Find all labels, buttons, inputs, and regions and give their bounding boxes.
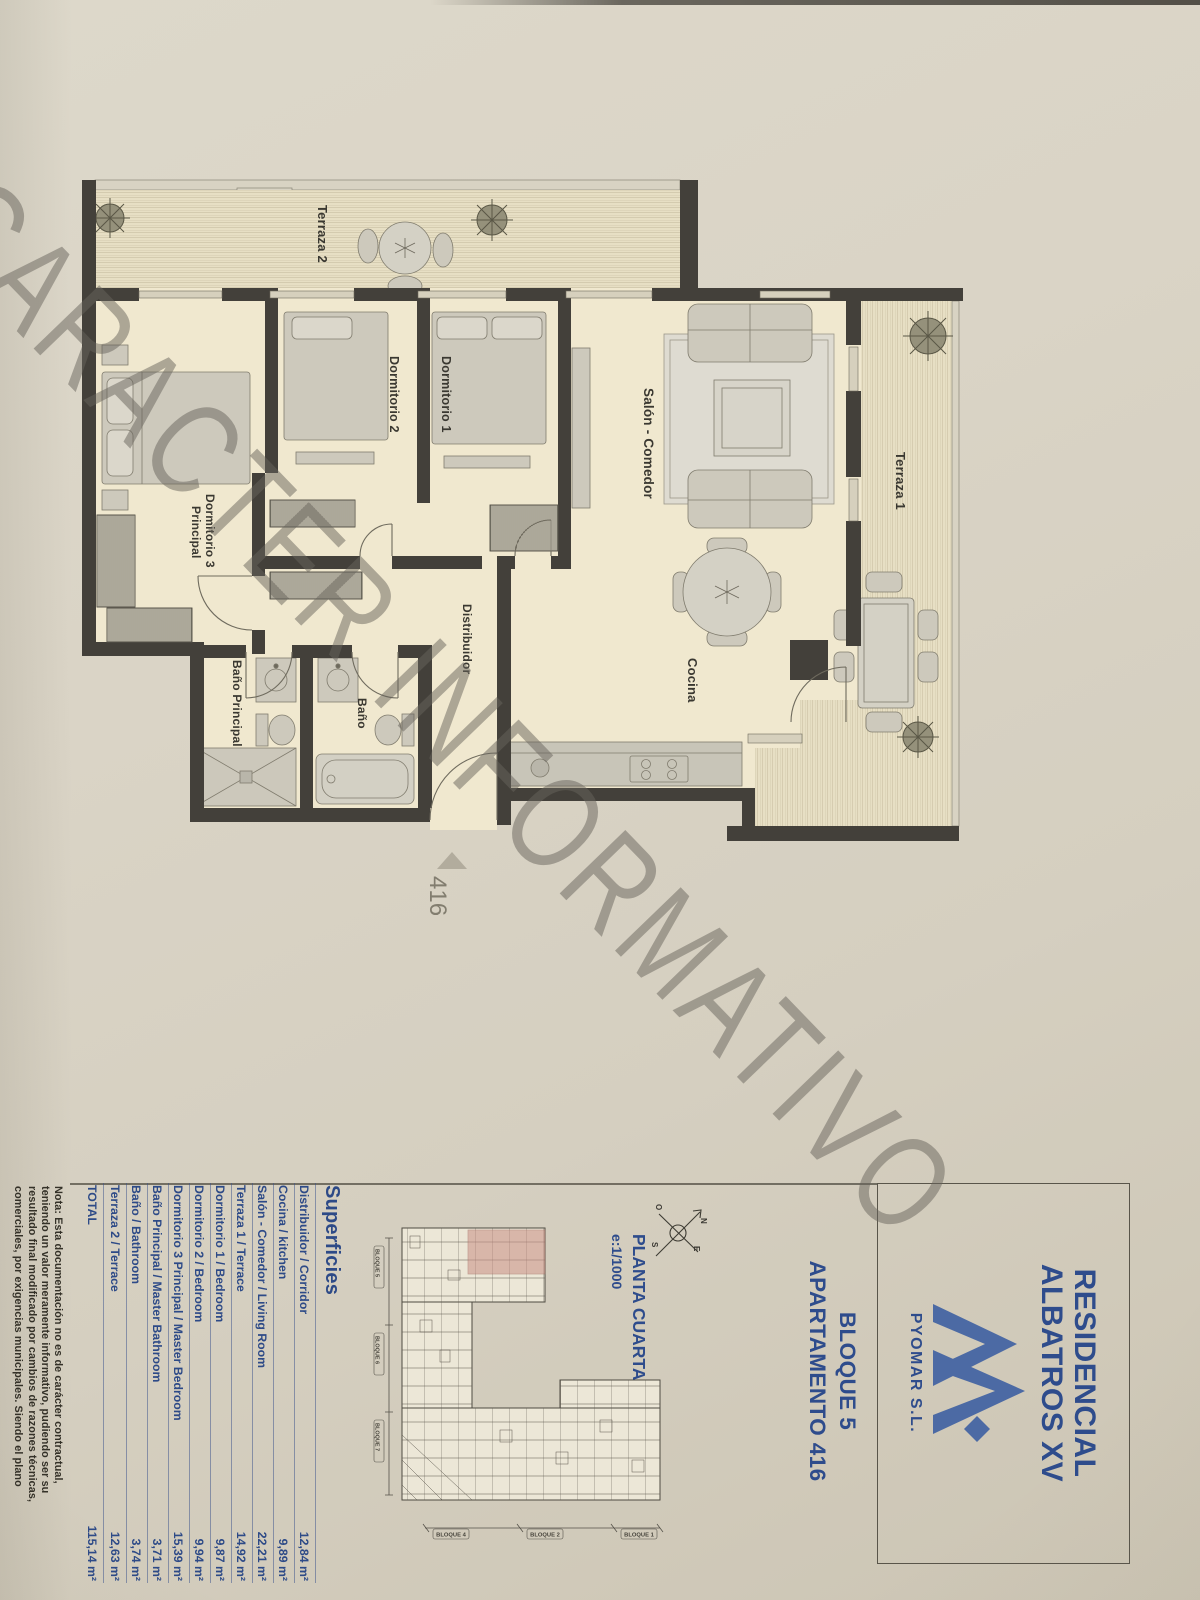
nightstand — [102, 345, 128, 365]
area-row-label: Terraza 1 / Terrace — [235, 1185, 249, 1292]
areas-total-label: TOTAL — [86, 1185, 100, 1225]
label-dormitorio1: Dormitorio 1 — [439, 356, 453, 433]
entrance-number: 416 — [424, 876, 451, 916]
site-side-label: BLOQUE 7 — [374, 1423, 380, 1451]
entrance-arrow-icon — [437, 852, 467, 869]
pillow — [107, 430, 133, 476]
unit-block-line1: BLOQUE 5 — [832, 1242, 862, 1500]
floor-name: PLANTA CUARTA — [628, 1234, 649, 1404]
company-name: PYOMAR S.L. — [906, 1313, 924, 1434]
area-row-value: 12,63 m² — [109, 1532, 123, 1581]
areas-table-row: Dormitorio 2 / Bedroom9,94 m² — [190, 1183, 211, 1583]
areas-table-row: Cocina / kitchen9,89 m² — [274, 1183, 295, 1583]
chair — [433, 233, 453, 267]
label-cocina: Cocina — [685, 658, 700, 703]
unit-block-line2: APARTAMENTO 416 — [802, 1242, 832, 1500]
label-salon: Salón - Comedor — [641, 388, 656, 500]
terrace-dining-table — [858, 598, 914, 708]
area-row-label: Distribuidor / Corridor — [298, 1185, 312, 1314]
legal-note-line: resultado final modificado por cambios d… — [24, 1186, 37, 1596]
label-dormitorio3-2: Principal — [189, 506, 203, 558]
highlighted-apartment — [468, 1230, 545, 1274]
floor-info-block: PLANTA CUARTA e:1/1000 — [609, 1234, 649, 1404]
label-bano-principal: Baño Principal — [230, 660, 244, 747]
bench — [444, 456, 530, 468]
chair — [918, 610, 938, 640]
legal-note: Nota: Esta documentación no es de caráct… — [11, 1186, 64, 1596]
label-dormitorio2: Dormitorio 2 — [387, 356, 401, 433]
chair — [866, 712, 902, 732]
chair — [866, 572, 902, 592]
pyomar-logo-icon — [929, 1298, 1029, 1448]
areas-table-row: Baño / Bathroom3,74 m² — [127, 1183, 148, 1583]
legal-note-line: Nota: Esta documentación no es de caráct… — [51, 1186, 64, 1596]
pillow — [437, 317, 487, 339]
compass-rose-icon: N E S O — [650, 1204, 708, 1256]
terraza2-parapet — [95, 180, 680, 190]
area-row-label: Dormitorio 2 / Bedroom — [193, 1185, 207, 1322]
legal-note-line: comerciales, por exigencias municipales.… — [11, 1186, 24, 1596]
area-row-value: 12,84 m² — [298, 1532, 312, 1581]
chair — [918, 652, 938, 682]
wc-tank — [256, 714, 268, 746]
compass-n: N — [699, 1218, 708, 1224]
areas-total-row: TOTAL 115,14 m² — [83, 1183, 104, 1583]
areas-table-row: Dormitorio 1 / Bedroom9,87 m² — [211, 1183, 232, 1583]
area-row-value: 9,94 m² — [193, 1539, 207, 1581]
label-terraza1: Terraza 1 — [893, 452, 908, 510]
area-row-label: Baño / Bathroom — [130, 1185, 144, 1284]
label-dormitorio3-1: Dormitorio 3 — [203, 494, 217, 568]
pillow — [492, 317, 542, 339]
compass-s: S — [650, 1242, 659, 1248]
site-bottom-label: BLOQUE 4 — [436, 1533, 466, 1539]
photographed-floorplan-page: { "watermark": "CARACTER INFORMATIVO", "… — [0, 0, 1200, 1600]
plant-icon — [471, 199, 513, 241]
unit-title-block: BLOQUE 5 APARTAMENTO 416 — [802, 1242, 862, 1500]
area-row-value: 15,39 m² — [172, 1532, 186, 1581]
floor-plan: 416 Terraza 2 Dormitorio 2 Dormitorio 1 … — [82, 180, 963, 916]
wc-tank — [402, 714, 414, 746]
coffee-table — [714, 380, 790, 456]
bench — [296, 452, 374, 464]
site-side-label: BLOQUE 6 — [374, 1336, 380, 1364]
toilet — [375, 715, 401, 745]
site-bottom-label: BLOQUE 1 — [624, 1533, 654, 1539]
area-row-value: 14,92 m² — [235, 1532, 249, 1581]
areas-table-header: Superficies — [320, 1185, 343, 1583]
site-bottom-label: BLOQUE 2 — [530, 1533, 560, 1539]
floor-scale: e:1/1000 — [609, 1234, 625, 1404]
area-row-value: 3,71 m² — [151, 1539, 165, 1581]
area-row-value: 9,89 m² — [277, 1539, 291, 1581]
area-row-label: Terraza 2 / Terrace — [109, 1185, 123, 1292]
label-distribuidor: Distribuidor — [460, 604, 474, 675]
sideboard — [572, 348, 590, 508]
area-row-label: Dormitorio 3 Principal / Master Bedroom — [172, 1185, 186, 1421]
pillow — [107, 378, 133, 424]
plant-icon — [903, 311, 953, 361]
area-row-label: Dormitorio 1 / Bedroom — [214, 1185, 228, 1322]
areas-table-row: Terraza 2 / Terrace12,63 m² — [106, 1183, 127, 1583]
areas-table-row: Baño Principal / Master Bathroom3,71 m² — [148, 1183, 169, 1583]
bathtub — [316, 754, 414, 804]
areas-total-value: 115,14 m² — [86, 1526, 100, 1581]
project-title-block: RESIDENCIAL ALBATROS XV PYOMAR S.L. — [881, 1186, 1126, 1560]
plant-icon — [897, 716, 939, 758]
terraza2-end-wall — [680, 180, 698, 301]
pillow — [292, 317, 352, 339]
label-terraza2: Terraza 2 — [315, 205, 330, 263]
areas-table-row: Terraza 1 / Terrace14,92 m² — [232, 1183, 253, 1583]
kitchen-sink — [531, 759, 549, 777]
areas-table-row: Salón - Comedor / Living Room22,21 m² — [253, 1183, 274, 1583]
areas-table-row: Distribuidor / Corridor12,84 m² — [295, 1183, 316, 1583]
legal-note-line: teniendo un valor meramente informativo,… — [38, 1186, 51, 1596]
area-row-value: 9,87 m² — [214, 1539, 228, 1581]
label-bano: Baño — [355, 698, 369, 729]
site-side-label: BLOQUE 5 — [374, 1249, 380, 1277]
area-row-value: 22,21 m² — [256, 1532, 270, 1581]
areas-table: Superficies Distribuidor / Corridor12,84… — [83, 1183, 345, 1583]
areas-table-row: Dormitorio 3 Principal / Master Bedroom1… — [169, 1183, 190, 1583]
chair — [358, 229, 378, 263]
toilet-master — [269, 715, 295, 745]
project-name-line1: RESIDENCIAL — [1068, 1269, 1101, 1478]
areas-table-rows: Distribuidor / Corridor12,84 m²Cocina / … — [106, 1183, 316, 1583]
terraza1-railing — [952, 301, 959, 826]
project-name-line2: ALBATROS XV — [1035, 1264, 1068, 1482]
area-row-label: Salón - Comedor / Living Room — [256, 1185, 270, 1368]
area-row-label: Baño Principal / Master Bathroom — [151, 1185, 165, 1382]
area-row-value: 3,74 m² — [130, 1539, 144, 1581]
area-row-label: Cocina / kitchen — [277, 1185, 291, 1279]
compass-o: O — [654, 1204, 663, 1210]
nightstand — [102, 490, 128, 510]
compass-e: E — [692, 1246, 701, 1252]
